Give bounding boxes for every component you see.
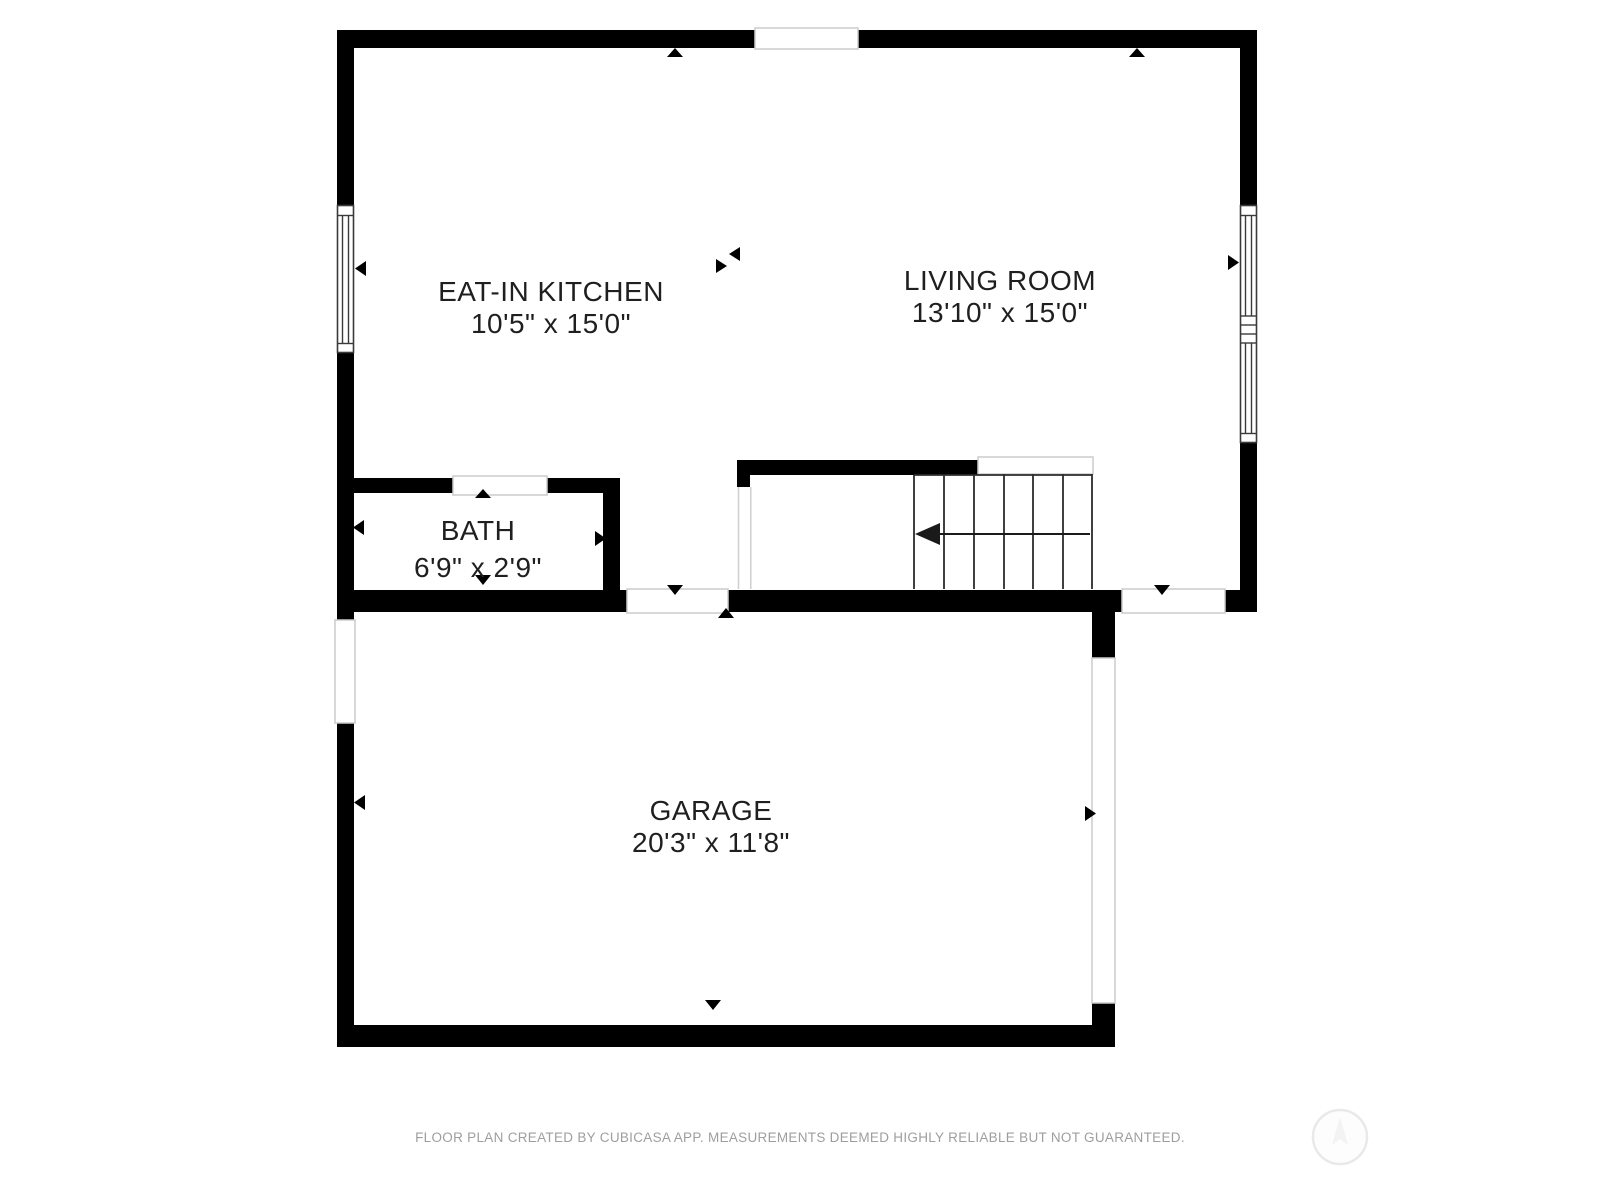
stairs-landing-box [978, 457, 1093, 474]
bath-doorway [453, 476, 547, 495]
garage-left-opening [335, 620, 355, 723]
kitchen-top-arrow-icon [667, 48, 683, 57]
room-dimensions-eat-in-kitchen: 10'5" x 15'0" [471, 308, 631, 339]
room-dimensions-living-room: 13'10" x 15'0" [912, 297, 1088, 328]
wall-garage-right-upper [1092, 612, 1115, 658]
room-labels: EAT-IN KITCHEN 10'5" x 15'0" LIVING ROOM… [414, 265, 1096, 858]
wall-right-lower [1240, 443, 1257, 612]
living-window-arrow-icon [1228, 255, 1239, 270]
staircase [739, 474, 1093, 589]
wall-top-right [858, 30, 1257, 48]
wall-bath-top-left [337, 478, 453, 493]
wall-bath-right [603, 478, 620, 612]
room-label-bath: BATH [441, 515, 516, 546]
room-label-garage: GARAGE [650, 795, 773, 826]
top-wall-opening [755, 28, 858, 49]
living-top-arrow-icon [1129, 48, 1145, 57]
wall-bottom-main-right [728, 590, 1122, 612]
room-flow-arrow-left-icon [729, 247, 740, 261]
wall-left-lower [337, 723, 354, 1047]
garage-bottom-arrow-icon [705, 1000, 721, 1010]
kitchen-window-icon [338, 206, 354, 353]
wall-bottom-main-left [337, 590, 627, 612]
garage-right-opening [1092, 658, 1115, 1003]
wall-stairs-stub [737, 460, 750, 487]
kitchen-window-arrow-icon [355, 261, 366, 276]
floor-plan-page: EAT-IN KITCHEN 10'5" x 15'0" LIVING ROOM… [0, 0, 1600, 1200]
footer-disclaimer: FLOOR PLAN CREATED BY CUBICASA APP. MEAS… [415, 1130, 1185, 1145]
wall-top-left [337, 30, 755, 48]
room-label-living-room: LIVING ROOM [904, 265, 1096, 296]
room-flow-arrow-right-icon [716, 259, 727, 273]
floor-plan-canvas: EAT-IN KITCHEN 10'5" x 15'0" LIVING ROOM… [0, 0, 1600, 1200]
living-room-doorway [1122, 589, 1225, 613]
wall-garage-bottom [337, 1025, 1115, 1047]
living-room-window-icon [1241, 206, 1257, 443]
wall-right-upper [1240, 30, 1257, 205]
garage-left-arrow-icon [354, 795, 365, 810]
hall-doorway [627, 589, 728, 613]
room-label-eat-in-kitchen: EAT-IN KITCHEN [438, 276, 664, 307]
wall-stairs-top [737, 460, 978, 475]
room-dimensions-garage: 20'3" x 11'8" [632, 827, 790, 858]
wall-bottom-right-corner [1225, 590, 1257, 612]
room-dimensions-bath: 6'9" x 2'9" [414, 552, 542, 583]
wall-left-upper [337, 30, 354, 205]
compass-icon [1313, 1110, 1367, 1164]
bath-left-arrow-icon [353, 520, 364, 535]
